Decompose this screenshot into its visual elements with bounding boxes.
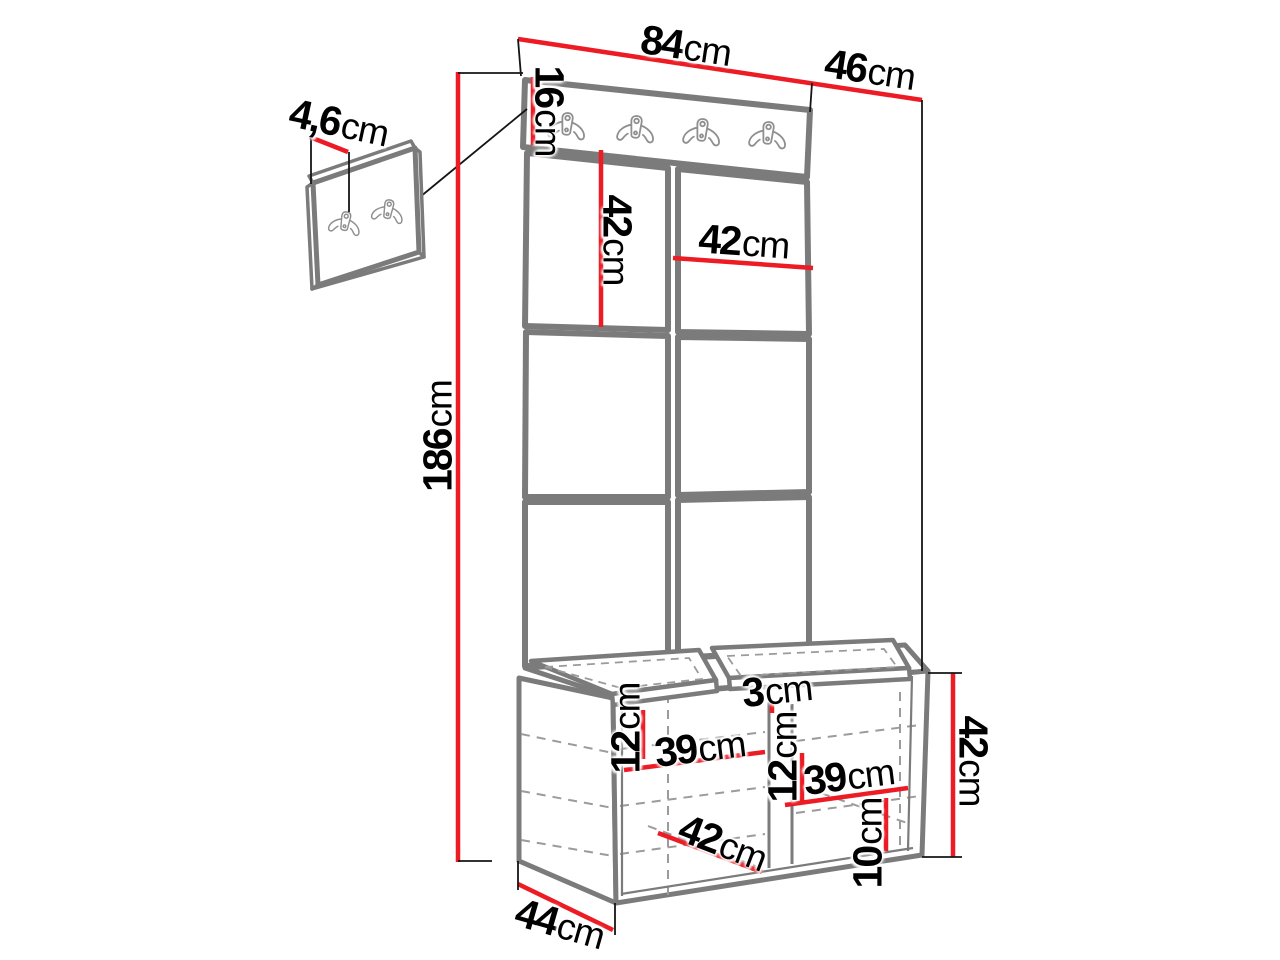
dim-unit: cm	[952, 759, 993, 806]
dim-unit: cm	[845, 751, 897, 797]
dim-unit: cm	[741, 222, 791, 266]
dim-unit: cm	[337, 105, 392, 155]
dim-value: 46	[822, 40, 870, 92]
wall-hook-panel	[307, 141, 424, 289]
dim-unit: cm	[681, 26, 734, 74]
dim-unit: cm	[419, 380, 460, 427]
dim-bottom-clearance-label: 10cm	[845, 798, 892, 889]
dim-value: 39	[652, 725, 699, 776]
dim-unit: cm	[607, 683, 648, 730]
dim-cushion-thickness-label: 3cm	[740, 663, 815, 717]
dimension-diagram-canvas: 84cm 46cm 16cm 4,6cm 42cm 42cm 186cm 12c…	[0, 0, 1280, 960]
dim-unit: cm	[696, 723, 748, 769]
dim-value: 39	[801, 753, 848, 804]
dim-value: 42	[697, 215, 742, 264]
dim-total-height-label: 186cm	[415, 380, 462, 492]
bench-left-face	[519, 678, 616, 903]
dim-unit: cm	[764, 712, 805, 759]
dim-panel-height-label: 42cm	[594, 195, 641, 286]
dim-value: 4,6	[285, 90, 344, 146]
dim-unit: cm	[528, 109, 569, 156]
upholstered-panel	[678, 337, 809, 495]
dim-unit: cm	[596, 238, 637, 285]
dim-value: 3	[740, 668, 766, 716]
dim-value: 12	[760, 761, 806, 803]
dim-unit: cm	[763, 667, 814, 713]
dim-value: 84	[638, 16, 686, 68]
furniture-line-art	[0, 0, 1280, 960]
detail-leader-line	[420, 109, 527, 197]
dim-unit: cm	[849, 798, 890, 845]
upholstered-panel	[525, 332, 668, 497]
dim-bench-height-label: 42cm	[950, 716, 997, 807]
dim-value: 10	[845, 847, 891, 889]
dim-value: 42	[595, 195, 641, 237]
dim-value: 42	[951, 716, 997, 758]
dim-value: 12	[603, 732, 649, 774]
dim-value: 186	[415, 429, 461, 491]
dim-value: 16	[527, 66, 573, 108]
dim-rail-height-label: 16cm	[526, 66, 573, 157]
dim-right-clearance-label: 12cm	[760, 712, 807, 803]
upholstered-panel	[678, 497, 809, 658]
dim-left-clearance-label: 12cm	[603, 683, 650, 774]
upholstered-panel	[525, 502, 668, 666]
wall-panel-unit	[523, 80, 810, 666]
dim-panel-width-label: 42cm	[697, 215, 791, 268]
dim-unit: cm	[865, 50, 918, 98]
